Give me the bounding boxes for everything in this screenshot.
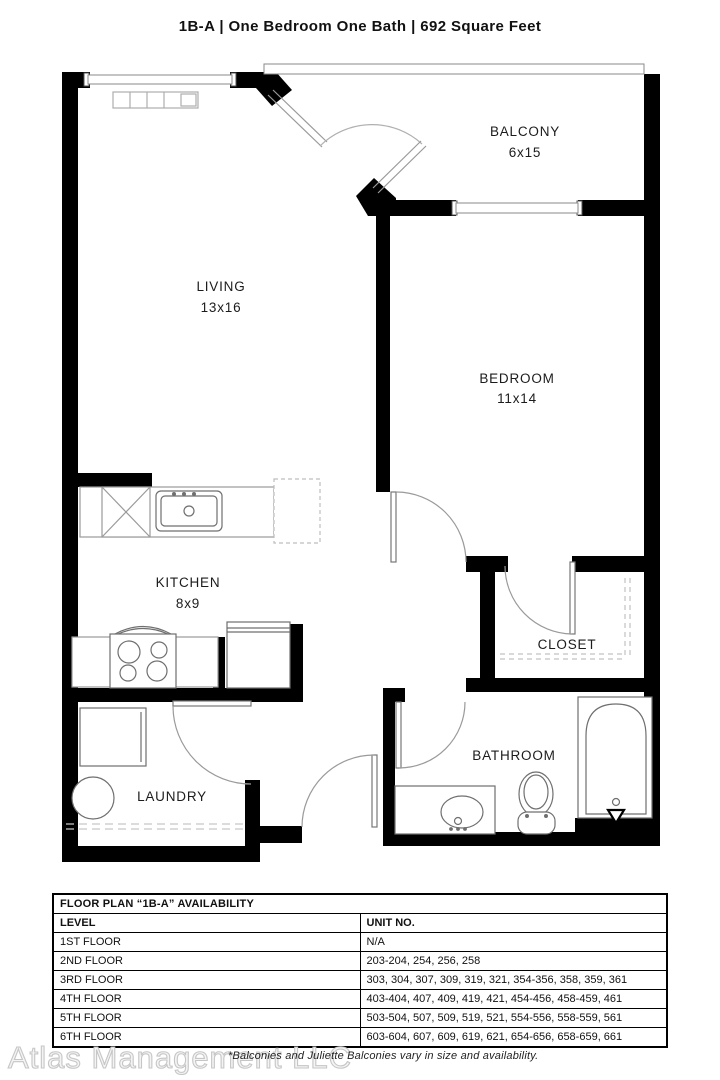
floor-plan-flyer: 1B-A | One Bedroom One Bath | 692 Square… bbox=[0, 0, 720, 1080]
bedroom-window bbox=[456, 203, 578, 213]
table-title-row: FLOOR PLAN “1B-A” AVAILABILITY bbox=[53, 894, 667, 914]
balcony-railing bbox=[264, 64, 644, 74]
closet-door-arc bbox=[505, 566, 572, 634]
cell-units: 303, 304, 307, 309, 319, 321, 354-356, 3… bbox=[360, 971, 667, 990]
col-header-unit: UNIT NO. bbox=[360, 914, 667, 933]
entry-door-leaf bbox=[378, 146, 426, 193]
wall-bath-left bbox=[383, 688, 395, 846]
toilet bbox=[518, 772, 555, 834]
wall-bedroom-top-left bbox=[376, 200, 456, 216]
wall-laundry-bottom bbox=[62, 846, 260, 862]
laundry-door-leaf bbox=[173, 701, 251, 706]
bathroom-door-arc bbox=[399, 702, 465, 768]
unit-entry-door-arc bbox=[302, 755, 374, 827]
walls-group bbox=[62, 72, 660, 862]
wall-stub-bedroom-bottom bbox=[466, 556, 508, 572]
wall-bedroom-left bbox=[376, 214, 390, 492]
entry-door-leaf bbox=[273, 90, 327, 142]
room-label-bathroom: BATHROOM bbox=[472, 748, 555, 763]
wall-closet-bottom bbox=[466, 678, 660, 692]
wall-entry-stub bbox=[245, 826, 302, 843]
entry-door-leaf bbox=[373, 141, 421, 188]
dryer bbox=[72, 777, 114, 819]
closet-door-leaf bbox=[570, 562, 575, 634]
cell-units: N/A bbox=[360, 933, 667, 952]
unit-entry-door-leaf bbox=[372, 755, 377, 827]
wall-kitchen-top bbox=[62, 473, 152, 487]
cell-units: 603-604, 607, 609, 619, 621, 654-656, 65… bbox=[360, 1028, 667, 1048]
laundry-door-arc bbox=[173, 706, 251, 784]
washer bbox=[80, 708, 146, 766]
table-row: 4TH FLOOR 403-404, 407, 409, 419, 421, 4… bbox=[53, 990, 667, 1009]
cell-level: 2ND FLOOR bbox=[53, 952, 360, 971]
room-label-bedroom: BEDROOM bbox=[479, 371, 554, 386]
wall-left-outer bbox=[62, 72, 78, 862]
cell-level: 1ST FLOOR bbox=[53, 933, 360, 952]
table-row: 5TH FLOOR 503-504, 507, 509, 519, 521, 5… bbox=[53, 1009, 667, 1028]
bedroom-door-arc bbox=[396, 492, 466, 562]
bathroom-door-leaf bbox=[396, 702, 401, 768]
baseboard-heater bbox=[113, 92, 198, 108]
floor-plan-drawing: BALCONY 6x15 LIVING 13x16 BEDROOM 11x14 … bbox=[0, 0, 720, 890]
table-row: 1ST FLOOR N/A bbox=[53, 933, 667, 952]
col-header-level: LEVEL bbox=[53, 914, 360, 933]
cell-level: 5TH FLOOR bbox=[53, 1009, 360, 1028]
room-label-laundry: LAUNDRY bbox=[137, 789, 207, 804]
room-dims-balcony: 6x15 bbox=[509, 145, 541, 160]
room-label-living: LIVING bbox=[196, 279, 245, 294]
room-dims-kitchen: 8x9 bbox=[176, 596, 200, 611]
room-dims-living: 13x16 bbox=[201, 300, 242, 315]
wall-closet-top bbox=[572, 556, 660, 572]
table-row: 3RD FLOOR 303, 304, 307, 309, 319, 321, … bbox=[53, 971, 667, 990]
wall-kitchen-bottom bbox=[62, 688, 302, 702]
cell-units: 503-504, 507, 509, 519, 521, 554-556, 55… bbox=[360, 1009, 667, 1028]
availability-table: FLOOR PLAN “1B-A” AVAILABILITY LEVEL UNI… bbox=[52, 893, 668, 1048]
room-label-kitchen: KITCHEN bbox=[156, 575, 221, 590]
entry-door-arc bbox=[320, 125, 422, 146]
room-dims-bedroom: 11x14 bbox=[497, 391, 537, 406]
living-window bbox=[88, 75, 232, 84]
table-title: FLOOR PLAN “1B-A” AVAILABILITY bbox=[53, 894, 667, 914]
kitchen-sink bbox=[156, 491, 222, 531]
cell-units: 203-204, 254, 256, 258 bbox=[360, 952, 667, 971]
vanity-sink bbox=[395, 786, 495, 834]
wall-closet-left bbox=[480, 570, 495, 682]
balcony-disclaimer: *Balconies and Juliette Balconies vary i… bbox=[228, 1050, 538, 1062]
table-row: 2ND FLOOR 203-204, 254, 256, 258 bbox=[53, 952, 667, 971]
cell-level: 4TH FLOOR bbox=[53, 990, 360, 1009]
cell-units: 403-404, 407, 409, 419, 421, 454-456, 45… bbox=[360, 990, 667, 1009]
refrigerator bbox=[227, 622, 290, 688]
laundry-shelf-dashed bbox=[66, 824, 244, 829]
dishwasher bbox=[102, 487, 150, 537]
pantry-dashed bbox=[274, 479, 320, 543]
cell-level: 3RD FLOOR bbox=[53, 971, 360, 990]
entry-door-leaf bbox=[268, 95, 322, 147]
room-label-balcony: BALCONY bbox=[490, 124, 560, 139]
bedroom-door-leaf bbox=[391, 492, 396, 562]
stove bbox=[110, 627, 176, 689]
table-header-row: LEVEL UNIT NO. bbox=[53, 914, 667, 933]
room-label-closet: CLOSET bbox=[538, 637, 597, 652]
bathtub bbox=[578, 697, 652, 823]
